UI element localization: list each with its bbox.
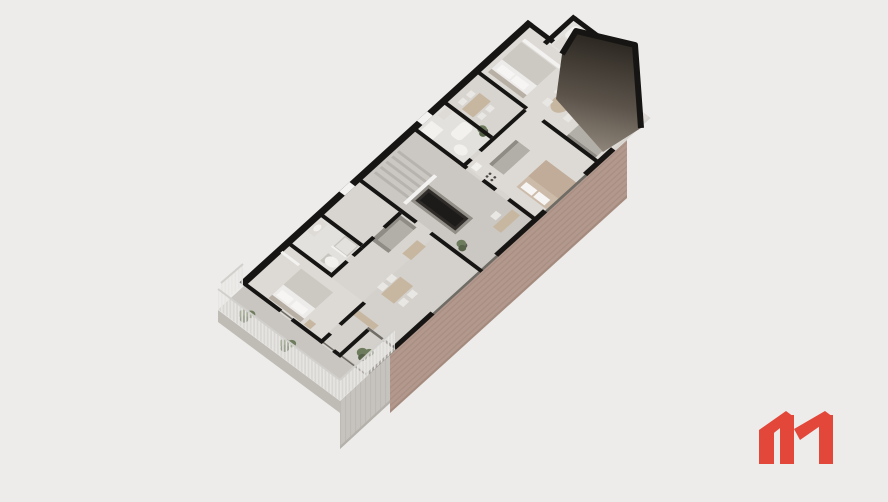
floorplan-screenshot: [0, 0, 888, 502]
render-canvas: [0, 0, 888, 502]
logo-bar-3: [819, 415, 833, 464]
logo-bar-2: [780, 415, 794, 464]
